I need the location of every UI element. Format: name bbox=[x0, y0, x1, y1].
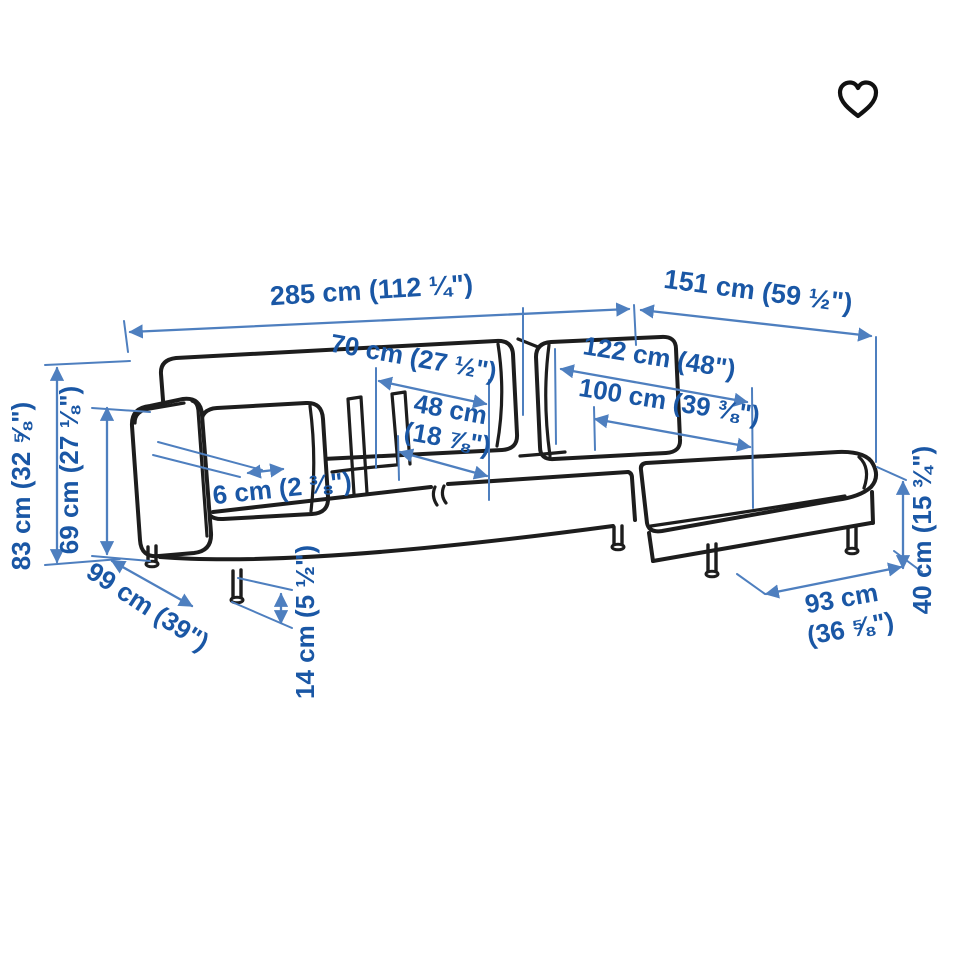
dim-total-depth: 99 cm (39") bbox=[81, 556, 214, 657]
dim-seat-height: 40 cm (15 ¾") bbox=[903, 446, 937, 614]
sofa-base-edge bbox=[160, 526, 613, 559]
dimension-label: 99 cm (39") bbox=[81, 556, 214, 657]
dimension-label: 69 cm (27 ⅛") bbox=[54, 386, 84, 554]
dimension-label: 151 cm (59 ½") bbox=[662, 264, 854, 319]
dim-total-width: 285 cm (112 ¼") bbox=[130, 269, 629, 332]
dimension-label: 40 cm (15 ¾") bbox=[907, 446, 937, 614]
dim-chaise-depth: 93 cm (36 ⅝") bbox=[766, 567, 901, 651]
chaise-seat-cushion bbox=[641, 452, 876, 531]
dimension-label: 83 cm (32 ⅝") bbox=[6, 402, 36, 570]
sofa-illustration bbox=[132, 337, 876, 603]
heart-icon bbox=[836, 79, 880, 121]
sofa-legs bbox=[146, 526, 858, 603]
product-dimension-view: 285 cm (112 ¼") 151 cm (59 ½") 70 cm (27… bbox=[0, 0, 960, 976]
dim-leg-height: 14 cm (5 ½") bbox=[281, 545, 320, 699]
dimension-label: 14 cm (5 ½") bbox=[290, 545, 320, 699]
favorite-button[interactable] bbox=[828, 70, 888, 130]
dim-armrest-height: 69 cm (27 ⅛") bbox=[54, 386, 107, 554]
dim-chaise-width: 151 cm (59 ½") bbox=[641, 264, 871, 336]
dim-total-height: 83 cm (32 ⅝") bbox=[6, 368, 57, 570]
dimension-label: 285 cm (112 ¼") bbox=[269, 269, 474, 311]
dim-seat-width: 48 cm (18 ⅞") bbox=[400, 388, 493, 476]
dimension-diagram: 285 cm (112 ¼") 151 cm (59 ½") 70 cm (27… bbox=[0, 0, 960, 976]
